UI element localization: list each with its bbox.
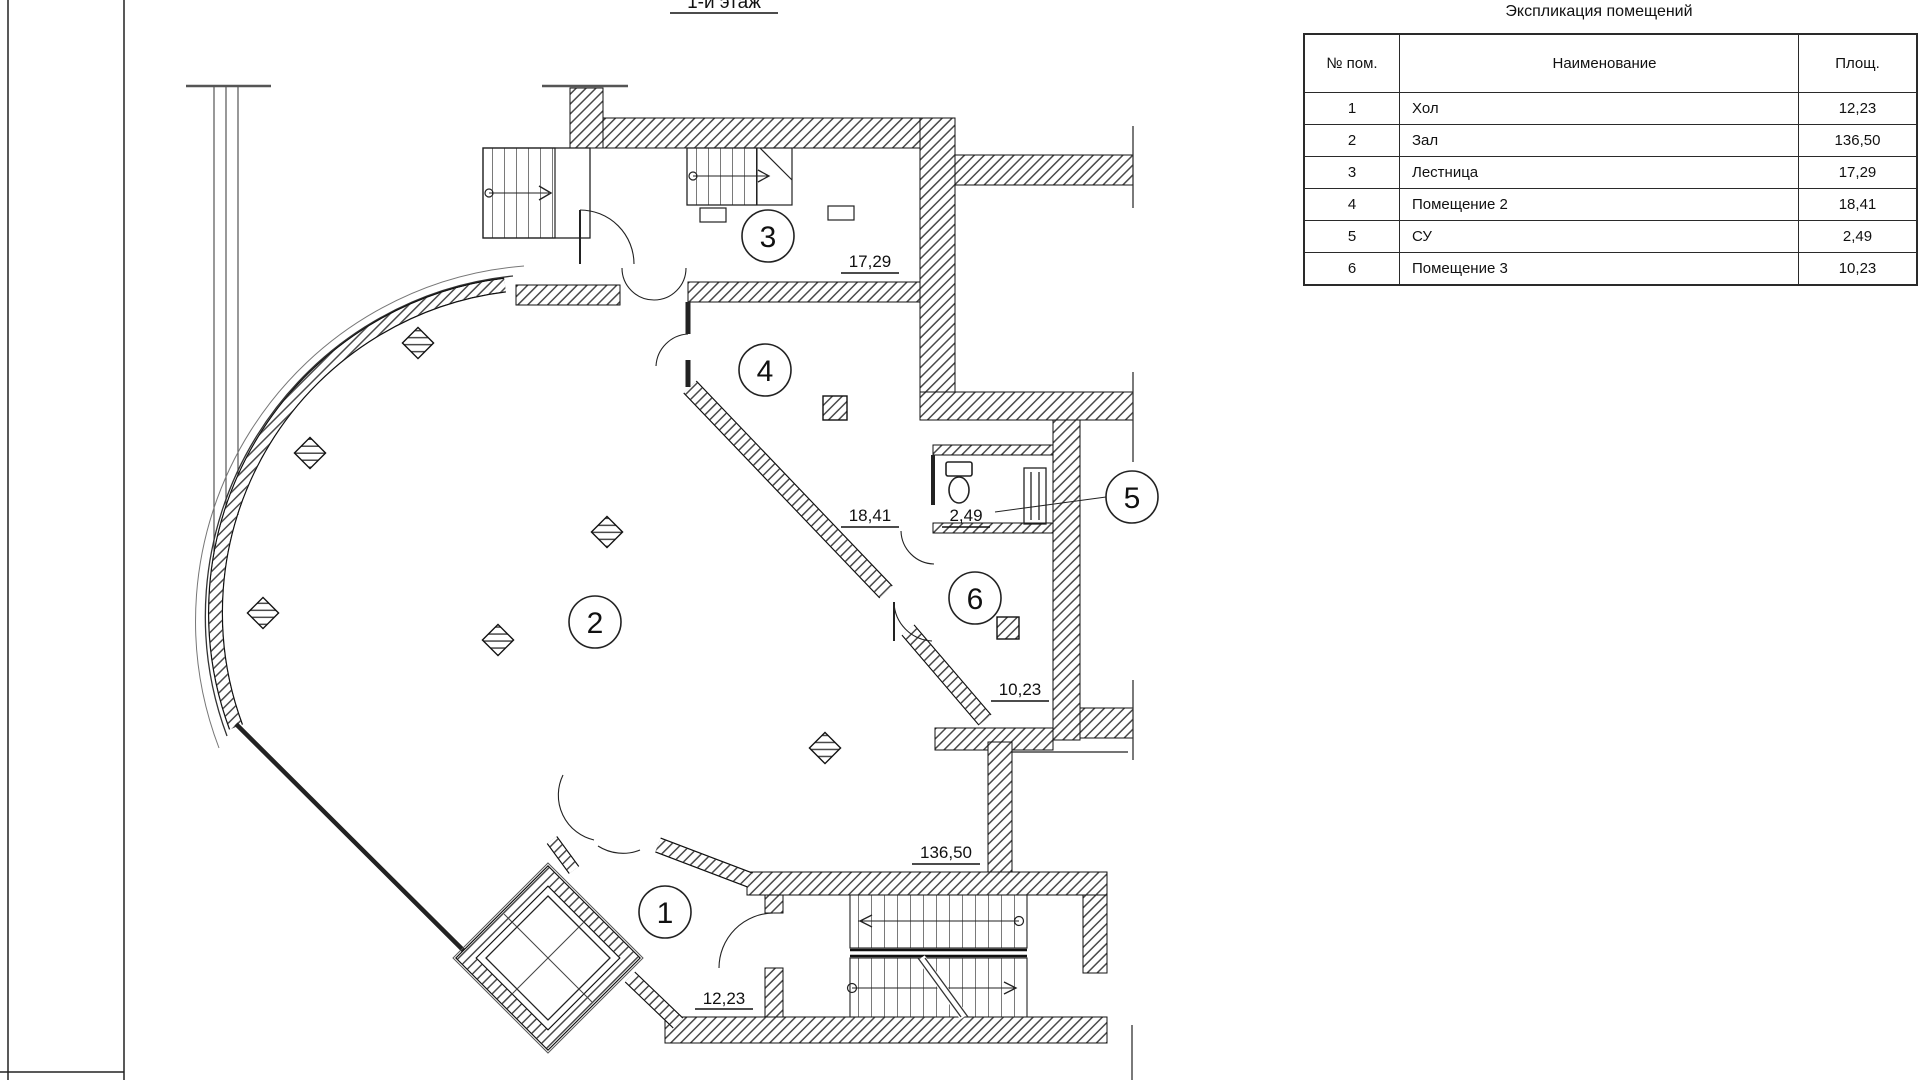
area-label-4: 18,41	[849, 506, 892, 525]
room-name: Помещение 3	[1400, 253, 1799, 286]
room-number: 3	[760, 221, 777, 254]
col-header-number: № пом.	[1304, 34, 1400, 93]
floor-title: 1-й этаж	[670, 0, 778, 13]
curved-wall	[196, 266, 524, 956]
room-area: 18,41	[1799, 189, 1918, 221]
room-circle-2: 2	[569, 596, 621, 648]
table-row: 1 Хол 12,23	[1304, 93, 1917, 125]
room-num: 3	[1304, 157, 1400, 189]
columns	[247, 327, 1019, 763]
room-area: 12,23	[1799, 93, 1918, 125]
room-area: 10,23	[1799, 253, 1918, 286]
column-marker	[823, 396, 847, 420]
table-title: Экспликация помещений	[1303, 3, 1895, 21]
room-name: Хол	[1400, 93, 1799, 125]
room-name: Помещение 2	[1400, 189, 1799, 221]
room-name: СУ	[1400, 221, 1799, 253]
toilet-icon	[946, 462, 972, 503]
table-row: 3 Лестница 17,29	[1304, 157, 1917, 189]
stairs-exterior	[483, 148, 590, 238]
cad-sheet: 1-й этаж	[0, 0, 1920, 1080]
room-num: 4	[1304, 189, 1400, 221]
table-header-row: № пом. Наименование Площ.	[1304, 34, 1917, 93]
column-marker	[482, 624, 513, 655]
break-lines	[1132, 126, 1133, 1080]
room-number: 1	[657, 897, 674, 930]
area-label-2: 136,50	[920, 843, 972, 862]
room-area: 136,50	[1799, 125, 1918, 157]
explication-table: № пом. Наименование Площ. 1 Хол 12,23 2 …	[1303, 33, 1918, 286]
vent-shaft	[1024, 468, 1046, 524]
room-circle-6: 6	[949, 572, 1001, 624]
col-header-area: Площ.	[1799, 34, 1918, 93]
floor-title-text: 1-й этаж	[687, 0, 761, 13]
duct-box	[828, 206, 854, 220]
elevator-shaft	[453, 863, 643, 1053]
room-num: 2	[1304, 125, 1400, 157]
room-area: 17,29	[1799, 157, 1918, 189]
area-label-5: 2,49	[949, 506, 982, 525]
sheet-frame	[0, 0, 124, 1080]
room-circle-1: 1	[639, 886, 691, 938]
room-number: 4	[757, 355, 774, 388]
area-label-1: 12,23	[703, 989, 746, 1008]
room-number: 2	[587, 607, 604, 640]
room-area: 2,49	[1799, 221, 1918, 253]
col-header-name: Наименование	[1400, 34, 1799, 93]
column-marker	[997, 617, 1019, 639]
column-marker	[294, 437, 325, 468]
walls	[516, 88, 1133, 1043]
column-marker	[809, 732, 840, 763]
area-label-3: 17,29	[849, 252, 892, 271]
room-num: 1	[1304, 93, 1400, 125]
stairs-main	[848, 895, 1028, 1017]
table-row: 4 Помещение 2 18,41	[1304, 189, 1917, 221]
room-circle-3: 3	[742, 210, 794, 262]
room-num: 6	[1304, 253, 1400, 286]
column-marker	[591, 516, 622, 547]
duct-box	[700, 208, 726, 222]
room-number: 6	[967, 583, 984, 616]
room-num: 5	[1304, 221, 1400, 253]
room-number: 5	[1124, 482, 1141, 515]
room-name: Зал	[1400, 125, 1799, 157]
column-marker	[247, 597, 278, 628]
table-row: 6 Помещение 3 10,23	[1304, 253, 1917, 286]
column-marker	[402, 327, 433, 358]
room-circle-4: 4	[739, 344, 791, 396]
area-label-6: 10,23	[999, 680, 1042, 699]
table-row: 5 СУ 2,49	[1304, 221, 1917, 253]
table-row: 2 Зал 136,50	[1304, 125, 1917, 157]
room-name: Лестница	[1400, 157, 1799, 189]
